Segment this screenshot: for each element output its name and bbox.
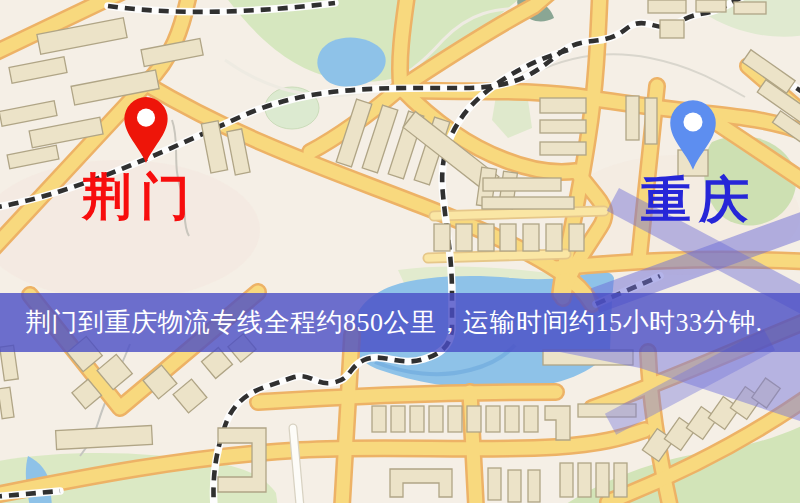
route-info-text: 荆门到重庆物流专线全程约850公里，运输时间约15小时33分钟. [0, 305, 763, 340]
destination-pin-icon[interactable] [667, 98, 719, 172]
marker-destination[interactable] [667, 98, 719, 172]
pin-hole [683, 112, 702, 131]
origin-pin-icon[interactable] [121, 95, 171, 165]
pin-hole [137, 109, 155, 127]
route-info-banner: 荆门到重庆物流专线全程约850公里，运输时间约15小时33分钟. [0, 293, 800, 352]
marker-origin[interactable] [121, 95, 171, 165]
map-canvas[interactable] [0, 0, 800, 503]
map-view[interactable]: 荆门 重庆 荆门到重庆物流专线全程约850公里，运输时间约15小时33分钟. [0, 0, 800, 503]
origin-label: 荆门 [82, 172, 198, 222]
destination-label: 重庆 [641, 175, 757, 225]
